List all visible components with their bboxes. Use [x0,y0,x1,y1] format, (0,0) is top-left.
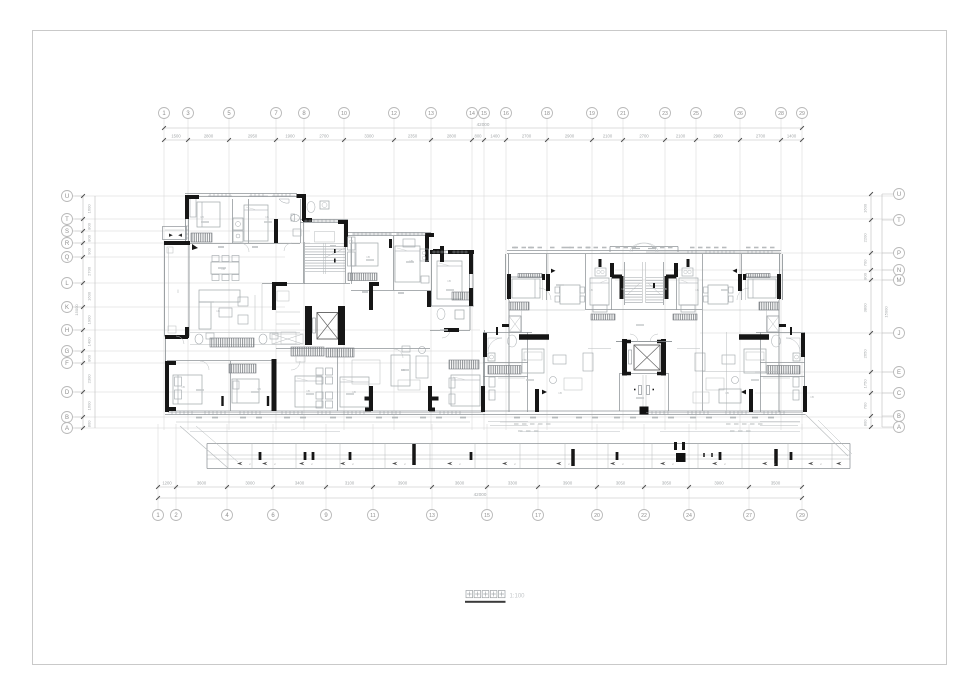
svg-text:15000: 15000 [74,304,79,316]
svg-text:R: R [65,241,70,247]
svg-text:2800: 2800 [204,134,214,139]
svg-text:1400: 1400 [787,134,797,139]
svg-text:26: 26 [737,111,743,117]
svg-text:800: 800 [87,354,92,361]
svg-text:U: U [897,192,901,198]
svg-text:1B: 1B [447,279,451,283]
svg-text:2100: 2100 [676,134,686,139]
svg-text:800: 800 [87,420,92,427]
svg-text:1600: 1600 [87,291,92,301]
svg-text:1B: 1B [352,390,356,394]
svg-text:1600: 1600 [87,401,92,411]
svg-text:2700: 2700 [522,134,532,139]
svg-text:42000: 42000 [474,492,487,497]
svg-text:J: J [898,331,901,337]
svg-text:1B: 1B [265,215,269,219]
svg-text:18: 18 [544,111,550,117]
svg-text:2200: 2200 [863,233,868,243]
svg-text:3300: 3300 [364,134,374,139]
svg-text:3050: 3050 [616,481,626,486]
svg-text:1B: 1B [216,309,220,313]
svg-text:11: 11 [370,513,375,519]
svg-text:2100: 2100 [603,134,613,139]
svg-text:3000: 3000 [245,481,255,486]
svg-text:13: 13 [429,513,435,519]
svg-text:14: 14 [469,111,475,117]
svg-text:1B: 1B [695,288,699,292]
svg-text:3100: 3100 [345,481,355,486]
svg-text:24: 24 [686,513,692,519]
svg-text:2650: 2650 [863,349,868,359]
svg-text:E: E [897,370,901,376]
svg-text:2350: 2350 [408,134,418,139]
svg-text:1B: 1B [663,287,667,291]
svg-text:1750: 1750 [863,379,868,389]
svg-text:3900: 3900 [563,481,573,486]
svg-text:U: U [65,194,69,200]
svg-text:1600: 1600 [863,203,868,213]
svg-text:T: T [65,217,69,223]
svg-text:1B: 1B [761,358,765,362]
svg-text:19: 19 [589,111,595,117]
svg-text:2700: 2700 [319,134,329,139]
svg-text:K: K [65,305,69,311]
svg-text:27: 27 [746,513,752,519]
svg-text:20: 20 [594,513,600,519]
svg-text:1B: 1B [725,391,729,395]
svg-text:16: 16 [503,111,509,117]
svg-text:22: 22 [641,513,647,519]
svg-text:1B: 1B [589,288,593,292]
svg-text:1B: 1B [810,395,814,399]
svg-text:13: 13 [428,111,434,117]
svg-text:D: D [65,390,70,396]
svg-text:H: H [65,328,69,334]
svg-text:1B: 1B [558,391,562,395]
svg-text:Q: Q [65,255,70,261]
svg-text:23: 23 [662,111,668,117]
svg-text:2900: 2900 [713,134,723,139]
svg-text:700: 700 [863,402,868,409]
svg-text:17: 17 [535,513,541,519]
svg-text:G: G [65,349,70,355]
svg-text:3800: 3800 [863,303,868,313]
svg-text:800: 800 [87,222,92,229]
svg-text:42000: 42000 [477,122,490,127]
svg-text:2700: 2700 [87,266,92,276]
svg-text:3050: 3050 [662,481,672,486]
svg-text:700: 700 [863,259,868,266]
svg-text:2700: 2700 [756,134,766,139]
svg-text:29: 29 [799,513,805,519]
svg-text:15: 15 [484,513,490,519]
svg-text:1600: 1600 [87,204,92,214]
svg-text:3900: 3900 [714,481,724,486]
svg-text:1B: 1B [306,389,310,393]
svg-text:2800: 2800 [447,134,457,139]
svg-text:M: M [897,278,902,284]
svg-text:T: T [897,218,901,224]
svg-text:10: 10 [341,111,347,117]
svg-text:800: 800 [863,272,868,279]
svg-text:1200: 1200 [162,481,172,486]
svg-text:1B: 1B [401,368,405,372]
svg-text:N: N [897,268,901,274]
svg-text:3300: 3300 [508,481,518,486]
svg-text:12: 12 [391,111,397,117]
svg-text:1400: 1400 [87,337,92,347]
svg-text:29: 29 [799,111,805,117]
svg-text:2950: 2950 [248,134,258,139]
svg-text:B: B [897,414,901,420]
svg-text:1B: 1B [522,358,526,362]
svg-text:1B: 1B [200,215,204,219]
svg-text:S: S [65,229,69,235]
svg-text:3400: 3400 [295,481,305,486]
svg-text:C: C [897,391,902,397]
svg-text:1400: 1400 [490,134,500,139]
svg-text:A: A [897,425,901,431]
svg-text:1B: 1B [409,259,413,263]
svg-text:800: 800 [87,234,92,241]
svg-text:21: 21 [620,111,626,117]
svg-text:2300: 2300 [87,374,92,384]
svg-text:1B: 1B [366,255,370,259]
svg-text:3600: 3600 [455,481,465,486]
svg-text:1900: 1900 [285,134,295,139]
svg-text:15: 15 [481,111,487,117]
svg-text:1500: 1500 [171,134,181,139]
svg-text:F: F [65,361,69,367]
svg-text:B: B [65,415,69,421]
svg-text:28: 28 [778,111,784,117]
svg-text:P: P [897,251,901,257]
svg-text:1900: 1900 [87,315,92,325]
svg-text:1B: 1B [221,267,225,271]
svg-text:2700: 2700 [639,134,649,139]
svg-text:1B: 1B [257,387,261,391]
svg-text:800: 800 [475,134,483,139]
svg-text:3600: 3600 [197,481,207,486]
svg-text:A: A [65,426,69,432]
svg-text:2900: 2900 [565,134,575,139]
svg-text:15000: 15000 [884,306,889,318]
svg-text:900: 900 [87,247,92,254]
svg-text:3500: 3500 [771,481,781,486]
svg-text:3900: 3900 [398,481,408,486]
svg-text:1B: 1B [181,385,185,389]
svg-text:||: || [177,289,179,293]
svg-text:800: 800 [863,419,868,426]
svg-text:25: 25 [693,111,699,117]
svg-text:1B: 1B [621,287,625,291]
svg-text:1:100: 1:100 [509,594,525,600]
